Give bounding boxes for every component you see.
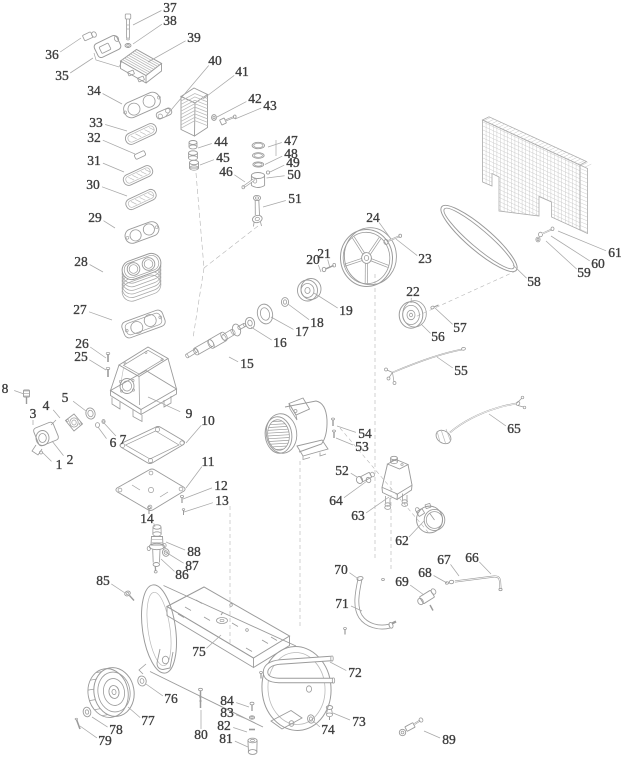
svg-text:85: 85 bbox=[96, 573, 110, 588]
svg-text:81: 81 bbox=[219, 731, 233, 746]
svg-text:8: 8 bbox=[2, 381, 9, 396]
svg-text:72: 72 bbox=[348, 665, 362, 680]
svg-text:3: 3 bbox=[30, 406, 37, 421]
svg-text:68: 68 bbox=[418, 565, 432, 580]
svg-text:74: 74 bbox=[321, 722, 335, 737]
svg-text:31: 31 bbox=[87, 153, 101, 168]
svg-text:23: 23 bbox=[418, 251, 432, 266]
svg-text:4: 4 bbox=[43, 398, 50, 413]
svg-text:76: 76 bbox=[164, 691, 178, 706]
svg-text:56: 56 bbox=[431, 329, 445, 344]
svg-text:26: 26 bbox=[75, 336, 89, 351]
svg-text:5: 5 bbox=[62, 390, 69, 405]
svg-text:33: 33 bbox=[89, 115, 103, 130]
svg-text:16: 16 bbox=[273, 335, 287, 350]
svg-text:7: 7 bbox=[120, 432, 127, 447]
svg-text:34: 34 bbox=[87, 83, 101, 98]
svg-text:61: 61 bbox=[608, 245, 621, 260]
svg-text:63: 63 bbox=[351, 508, 365, 523]
svg-text:58: 58 bbox=[527, 274, 541, 289]
svg-text:41: 41 bbox=[235, 64, 249, 79]
svg-text:28: 28 bbox=[74, 254, 88, 269]
svg-text:71: 71 bbox=[335, 596, 349, 611]
svg-text:45: 45 bbox=[216, 150, 230, 165]
svg-text:19: 19 bbox=[339, 303, 353, 318]
svg-text:1: 1 bbox=[56, 457, 63, 472]
svg-text:84: 84 bbox=[220, 693, 234, 708]
svg-text:89: 89 bbox=[442, 732, 456, 747]
svg-text:73: 73 bbox=[352, 714, 366, 729]
svg-text:38: 38 bbox=[163, 13, 177, 28]
svg-text:21: 21 bbox=[317, 246, 331, 261]
svg-text:36: 36 bbox=[45, 47, 59, 62]
svg-text:59: 59 bbox=[577, 265, 591, 280]
svg-text:80: 80 bbox=[194, 727, 208, 742]
svg-text:55: 55 bbox=[454, 363, 468, 378]
svg-text:43: 43 bbox=[263, 98, 277, 113]
svg-text:2: 2 bbox=[67, 452, 74, 467]
svg-text:22: 22 bbox=[406, 284, 420, 299]
svg-text:24: 24 bbox=[366, 210, 380, 225]
svg-text:65: 65 bbox=[507, 421, 521, 436]
svg-text:12: 12 bbox=[214, 478, 228, 493]
svg-text:32: 32 bbox=[87, 130, 101, 145]
svg-text:54: 54 bbox=[358, 426, 372, 441]
svg-text:9: 9 bbox=[186, 406, 193, 421]
svg-text:52: 52 bbox=[335, 463, 349, 478]
svg-text:17: 17 bbox=[295, 324, 309, 339]
svg-text:50: 50 bbox=[287, 167, 301, 182]
svg-text:10: 10 bbox=[201, 413, 215, 428]
svg-text:57: 57 bbox=[453, 320, 467, 335]
svg-text:44: 44 bbox=[214, 134, 228, 149]
svg-text:6: 6 bbox=[110, 435, 117, 450]
svg-text:62: 62 bbox=[395, 533, 409, 548]
svg-text:69: 69 bbox=[395, 574, 409, 589]
svg-text:82: 82 bbox=[217, 718, 231, 733]
svg-text:39: 39 bbox=[187, 30, 201, 45]
svg-text:77: 77 bbox=[141, 713, 155, 728]
svg-text:88: 88 bbox=[187, 544, 201, 559]
svg-text:70: 70 bbox=[334, 562, 348, 577]
svg-text:11: 11 bbox=[202, 454, 215, 469]
svg-text:13: 13 bbox=[215, 493, 229, 508]
svg-text:60: 60 bbox=[591, 256, 605, 271]
svg-text:66: 66 bbox=[465, 550, 479, 565]
svg-text:46: 46 bbox=[219, 164, 233, 179]
svg-text:29: 29 bbox=[88, 210, 102, 225]
svg-text:18: 18 bbox=[310, 315, 324, 330]
svg-text:35: 35 bbox=[55, 68, 69, 83]
svg-text:40: 40 bbox=[208, 53, 222, 68]
svg-text:87: 87 bbox=[185, 558, 199, 573]
svg-text:30: 30 bbox=[86, 177, 100, 192]
svg-text:51: 51 bbox=[288, 191, 302, 206]
svg-text:42: 42 bbox=[248, 91, 262, 106]
svg-text:53: 53 bbox=[355, 439, 369, 454]
svg-text:27: 27 bbox=[73, 302, 87, 317]
svg-text:79: 79 bbox=[98, 733, 112, 748]
svg-text:67: 67 bbox=[437, 552, 451, 567]
svg-text:15: 15 bbox=[240, 356, 254, 371]
svg-text:75: 75 bbox=[192, 644, 206, 659]
svg-text:64: 64 bbox=[329, 493, 343, 508]
svg-text:25: 25 bbox=[74, 349, 88, 364]
svg-text:14: 14 bbox=[140, 511, 154, 526]
